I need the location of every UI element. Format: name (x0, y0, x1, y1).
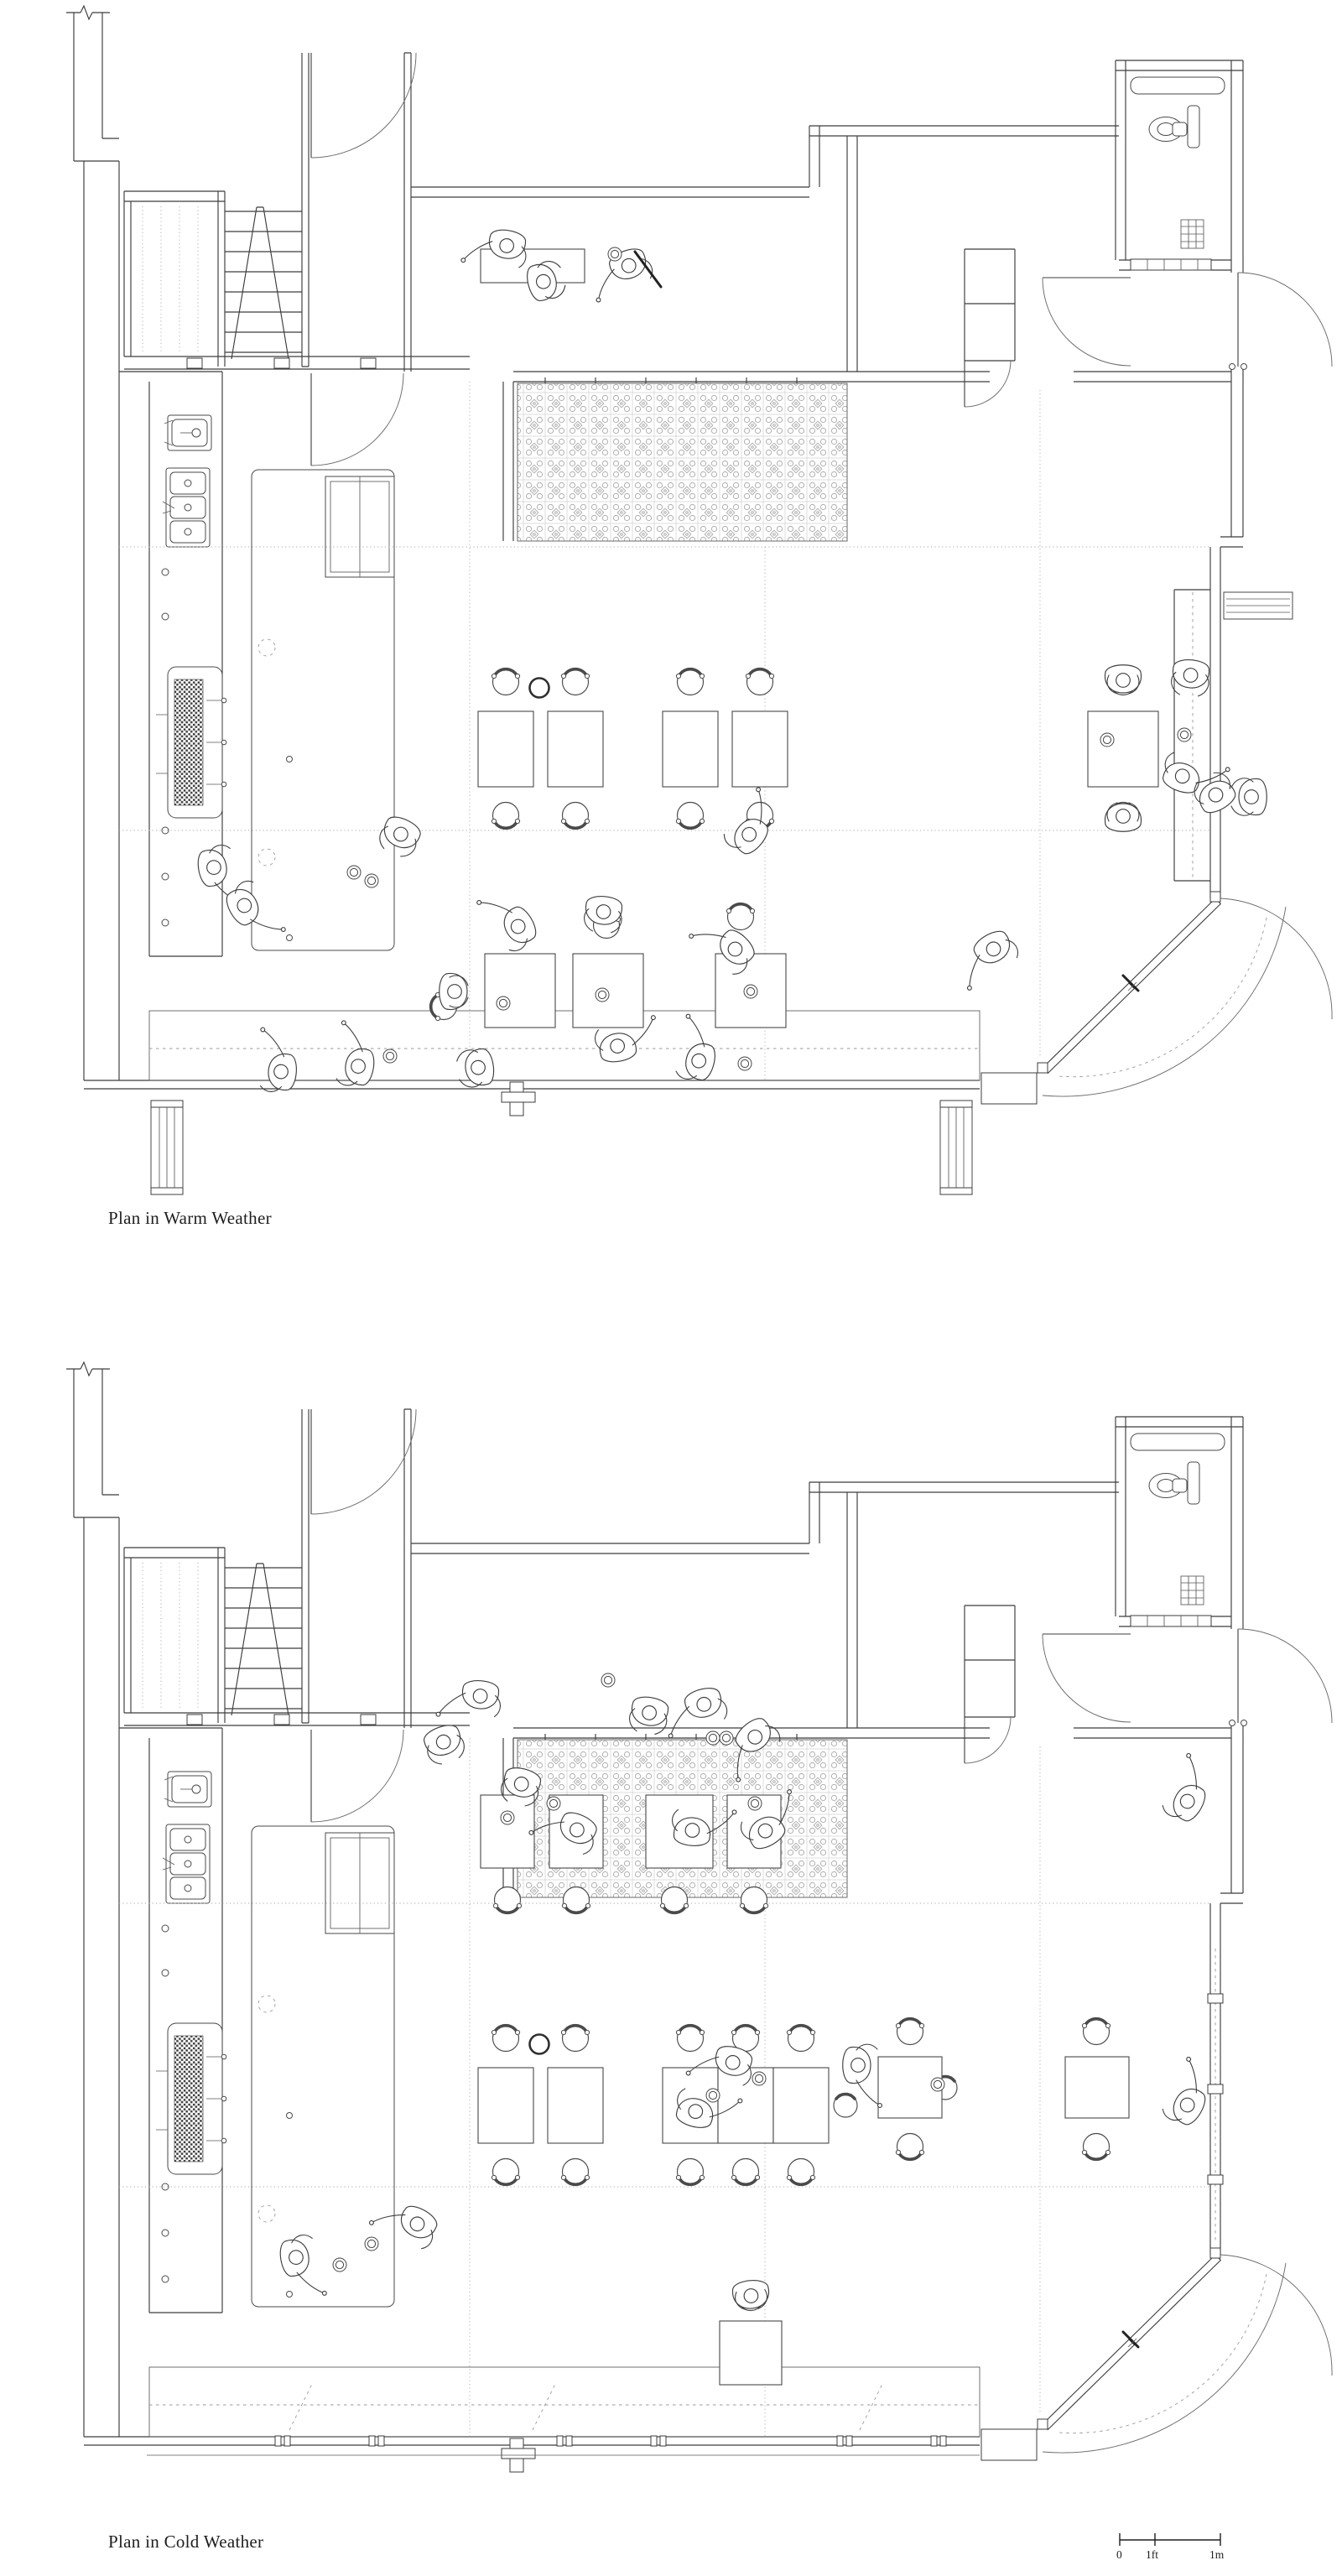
coffee-cup (365, 874, 378, 887)
chair (493, 1887, 521, 1913)
coffee-cup (365, 2237, 378, 2251)
coffee-cup (333, 2258, 346, 2272)
table (1065, 2057, 1129, 2118)
person (717, 787, 788, 861)
chair (896, 2134, 923, 2160)
person (455, 1047, 496, 1089)
chair (561, 803, 589, 829)
coffee-cup (720, 1731, 733, 1745)
cold-plan-label: Plan in Cold Weather (108, 2532, 263, 2553)
chair (561, 669, 589, 695)
table (478, 2068, 533, 2143)
table (773, 2068, 829, 2143)
chair (561, 2159, 589, 2185)
glazing-mullions (275, 2436, 946, 2446)
chair (731, 2159, 759, 2185)
person (1231, 778, 1267, 815)
table (720, 2321, 782, 2385)
chair (492, 803, 519, 829)
plan-warm-shell (66, 6, 1332, 1116)
architectural-sheet: { "page": {"background": "#ffffff", "ink… (0, 0, 1342, 2576)
coffee-cup (1100, 733, 1114, 747)
table (1088, 711, 1158, 787)
person (1170, 658, 1210, 697)
table (485, 954, 555, 1028)
coffee-cup (706, 2089, 720, 2102)
coffee-cup (547, 1797, 560, 1810)
chair (787, 2159, 814, 2185)
chair (562, 1887, 590, 1913)
person (256, 1028, 300, 1094)
chair (1082, 2019, 1110, 2045)
round-chair (834, 2094, 857, 2117)
scale-1ft-label: 1ft (1146, 2548, 1158, 2562)
person (436, 1677, 502, 1721)
table (548, 711, 603, 787)
chair (746, 669, 773, 695)
coffee-cup (752, 2072, 766, 2085)
outdoor-bench (1224, 592, 1293, 619)
coffee-cup (1178, 728, 1191, 742)
table (732, 711, 788, 787)
chair (896, 2019, 923, 2045)
outdoor-bench (940, 1101, 972, 1194)
chair (492, 2159, 519, 2185)
scale-bar (1120, 2533, 1220, 2546)
person (440, 974, 468, 1010)
table (663, 711, 718, 787)
table (478, 711, 533, 787)
person (1157, 1753, 1222, 1828)
chair (676, 669, 704, 695)
scale-1m-label: 1m (1209, 2548, 1224, 2562)
floor-plan-drawing (0, 0, 1342, 2576)
chair (787, 2026, 814, 2052)
person (627, 1694, 670, 1736)
person (659, 1684, 731, 1739)
coffee-cup (596, 988, 609, 1002)
person (949, 925, 1024, 991)
chair (492, 2026, 519, 2052)
chair (676, 2026, 704, 2052)
person (421, 1721, 468, 1767)
chair (726, 904, 754, 930)
table (548, 2068, 603, 2143)
chair (492, 669, 519, 695)
chair (676, 2159, 704, 2185)
coffee-cup (744, 985, 757, 998)
table (573, 954, 643, 1028)
person (731, 2279, 770, 2311)
outdoor-bench (151, 1101, 183, 1194)
person (476, 882, 542, 957)
coffee-cup (497, 997, 510, 1010)
chair (561, 2026, 589, 2052)
coffee-cup (931, 2078, 944, 2091)
plan-cold-shell (66, 1362, 1332, 2472)
coffee-cup (748, 1797, 762, 1810)
coffee-cup (383, 1049, 397, 1063)
coffee-cup (347, 866, 361, 879)
warm-plan-label: Plan in Warm Weather (108, 1208, 272, 1229)
coffee-cup (738, 1057, 752, 1070)
coffee-cup (608, 247, 622, 261)
chair (660, 1887, 688, 1913)
coffee-cup (706, 1731, 720, 1745)
chair (676, 803, 704, 829)
person (1105, 665, 1142, 694)
chair (1082, 2134, 1110, 2160)
coffee-cup (501, 1811, 514, 1824)
coffee-cup (601, 1673, 615, 1687)
person (331, 1021, 381, 1090)
chair (740, 1887, 767, 1913)
person (1105, 803, 1142, 831)
scale-zero-label: 0 (1116, 2548, 1122, 2562)
